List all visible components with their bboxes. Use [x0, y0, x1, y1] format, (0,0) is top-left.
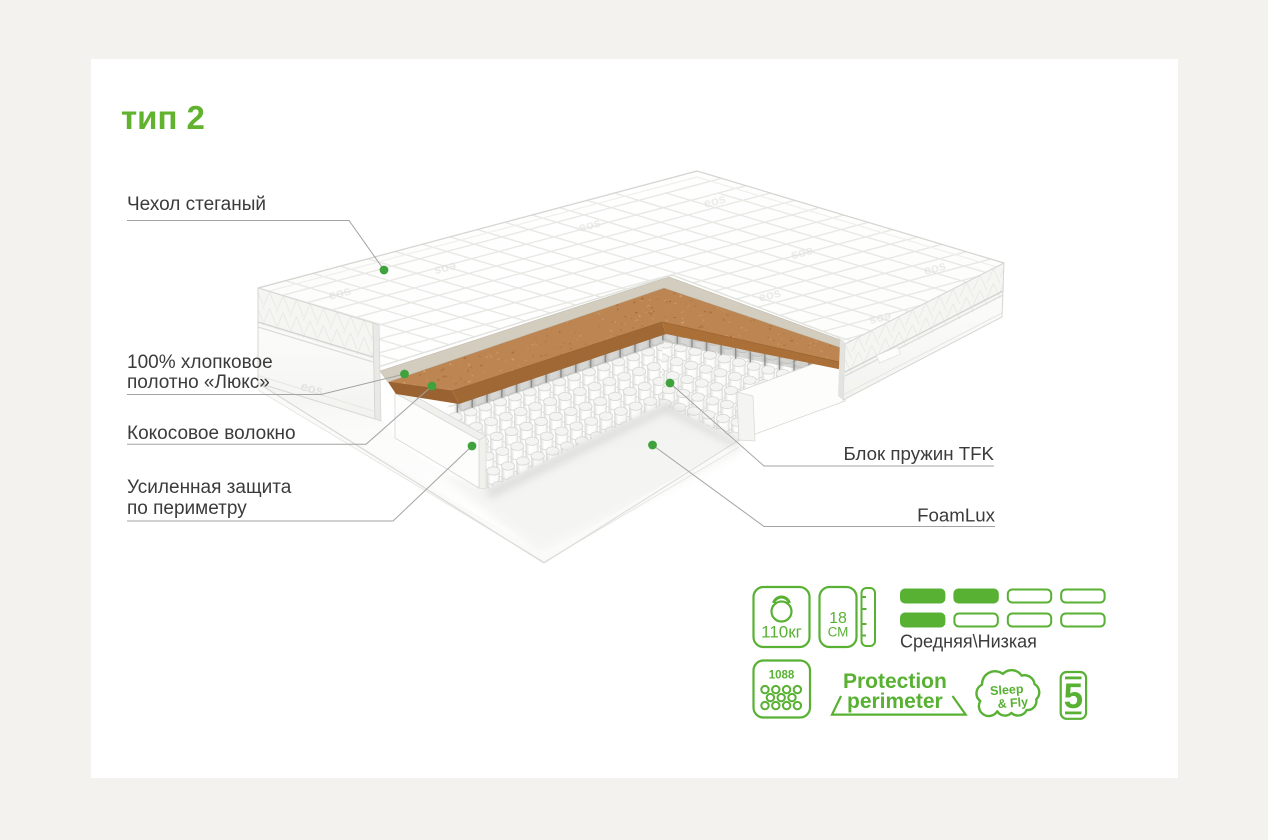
svg-text:Усиленная защита: Усиленная защита	[127, 477, 292, 498]
svg-text:1088: 1088	[769, 670, 795, 682]
svg-text:& Fly: & Fly	[997, 695, 1029, 711]
svg-text:perimeter: perimeter	[847, 690, 943, 713]
svg-text:100% хлопковое: 100% хлопковое	[127, 352, 273, 373]
svg-text:5: 5	[1064, 677, 1083, 716]
svg-text:Блок пружин TFK: Блок пружин TFK	[843, 443, 994, 464]
svg-text:FoamLux: FoamLux	[917, 505, 996, 526]
svg-text:по периметру: по периметру	[127, 498, 247, 519]
svg-text:СМ: СМ	[828, 625, 849, 640]
svg-text:Средняя\Низкая: Средняя\Низкая	[900, 632, 1037, 652]
svg-text:110кг: 110кг	[761, 623, 802, 642]
svg-text:полотно «Люкс»: полотно «Люкс»	[127, 372, 270, 393]
svg-text:Кокосовое волокно: Кокосовое волокно	[127, 423, 296, 444]
svg-text:тип 2: тип 2	[121, 99, 205, 136]
svg-text:Чехол стеганый: Чехол стеганый	[127, 194, 266, 215]
